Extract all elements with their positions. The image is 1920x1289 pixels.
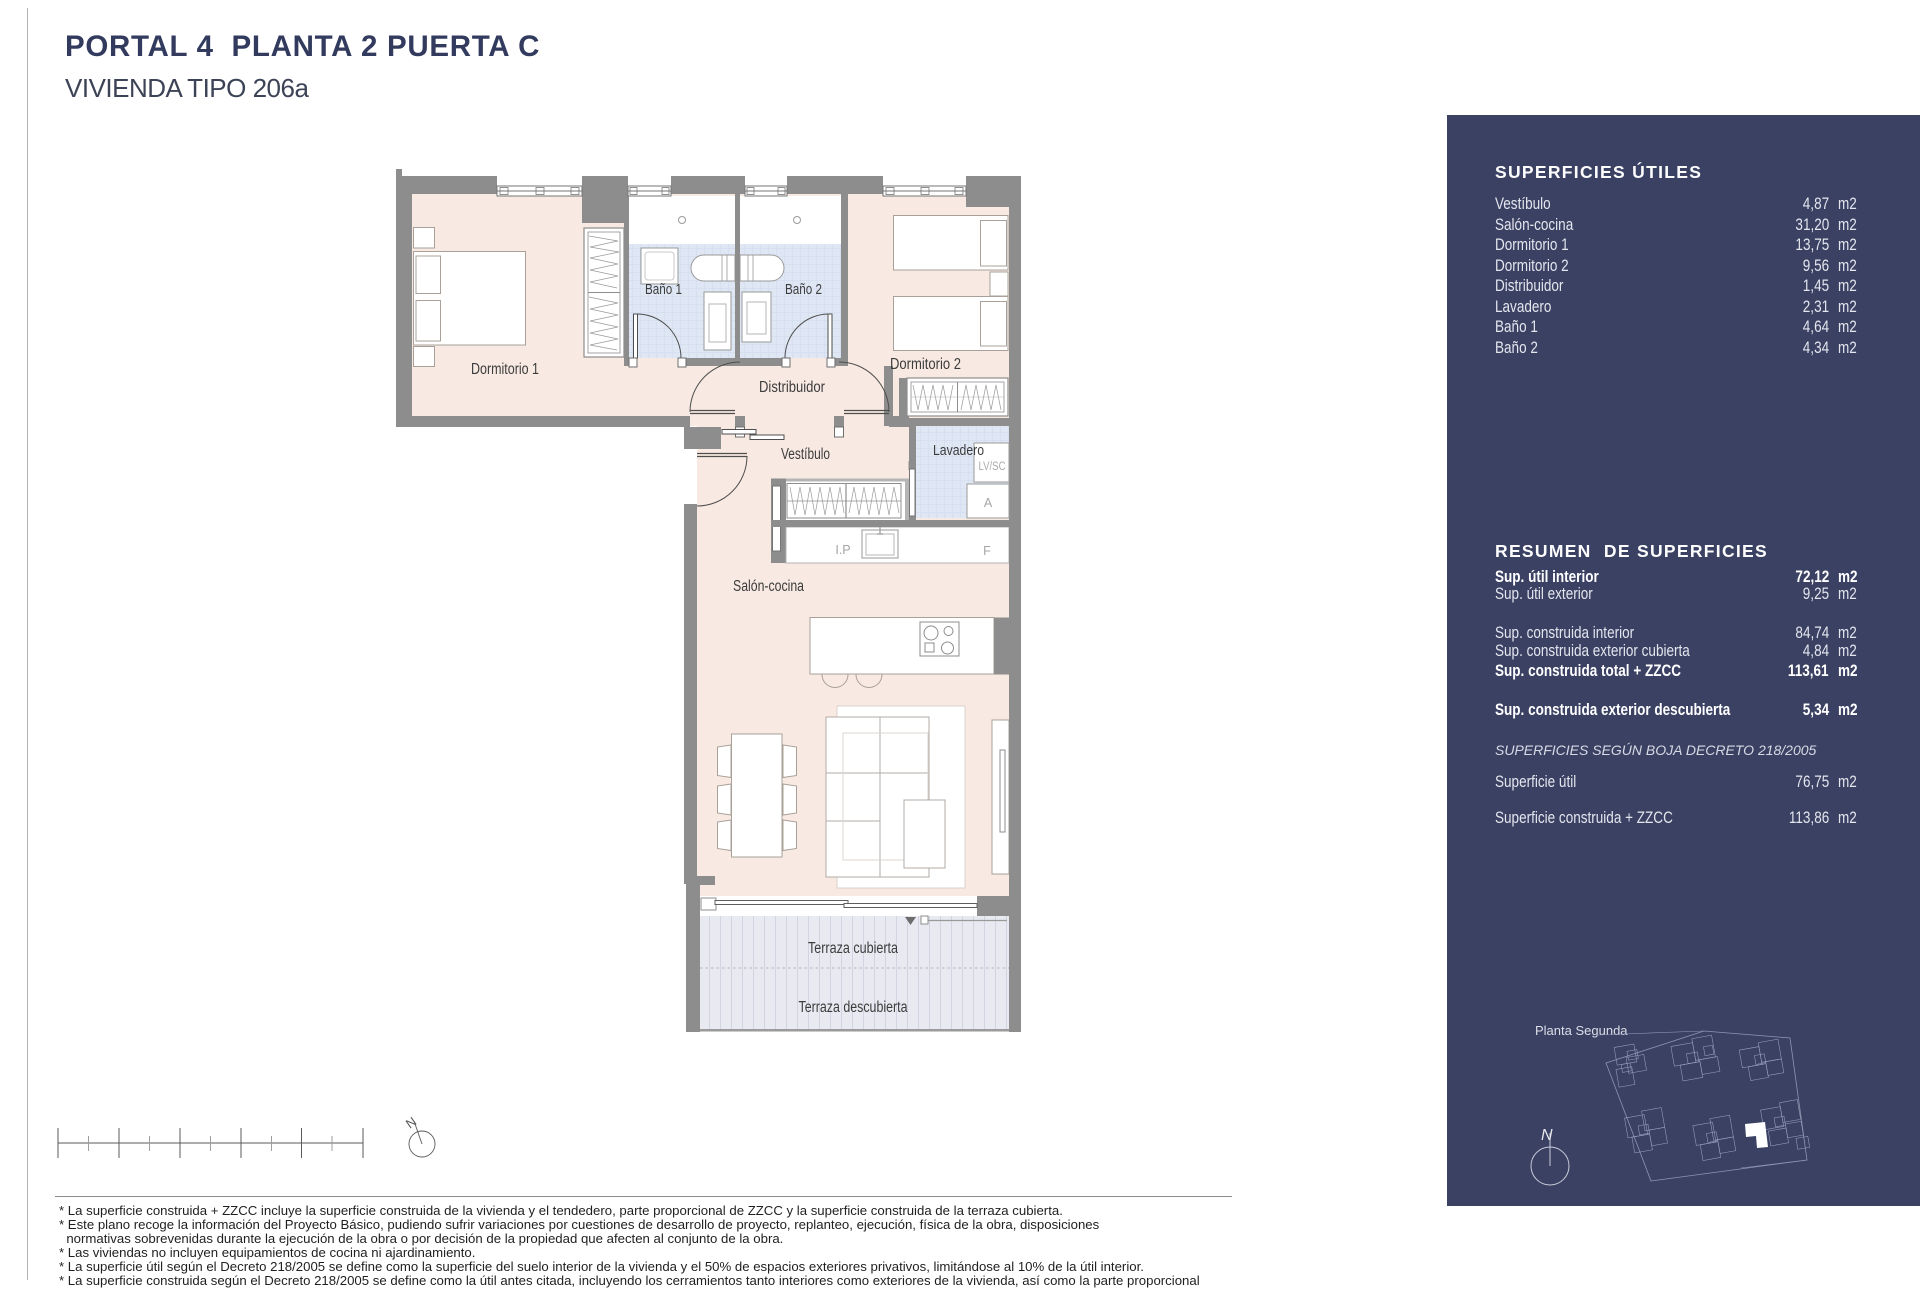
svg-text:Dormitorio 2: Dormitorio 2 (890, 356, 961, 373)
svg-text:Salón-cocina: Salón-cocina (733, 578, 804, 595)
svg-text:Vestíbulo: Vestíbulo (781, 446, 830, 463)
svg-text:A: A (984, 496, 993, 510)
svg-text:Baño 2: Baño 2 (785, 281, 822, 298)
svg-text:I.P: I.P (835, 543, 850, 557)
svg-text:N: N (1541, 1127, 1553, 1144)
svg-text:Baño 1: Baño 1 (645, 281, 682, 298)
svg-text:F: F (983, 544, 991, 558)
svg-text:Terraza cubierta: Terraza cubierta (808, 940, 898, 957)
svg-text:Dormitorio 1: Dormitorio 1 (471, 361, 539, 378)
svg-text:Distribuidor: Distribuidor (759, 379, 825, 396)
svg-text:Terraza descubierta: Terraza descubierta (799, 999, 908, 1016)
svg-text:LV/SC: LV/SC (979, 461, 1006, 473)
svg-text:Lavadero: Lavadero (933, 442, 984, 459)
